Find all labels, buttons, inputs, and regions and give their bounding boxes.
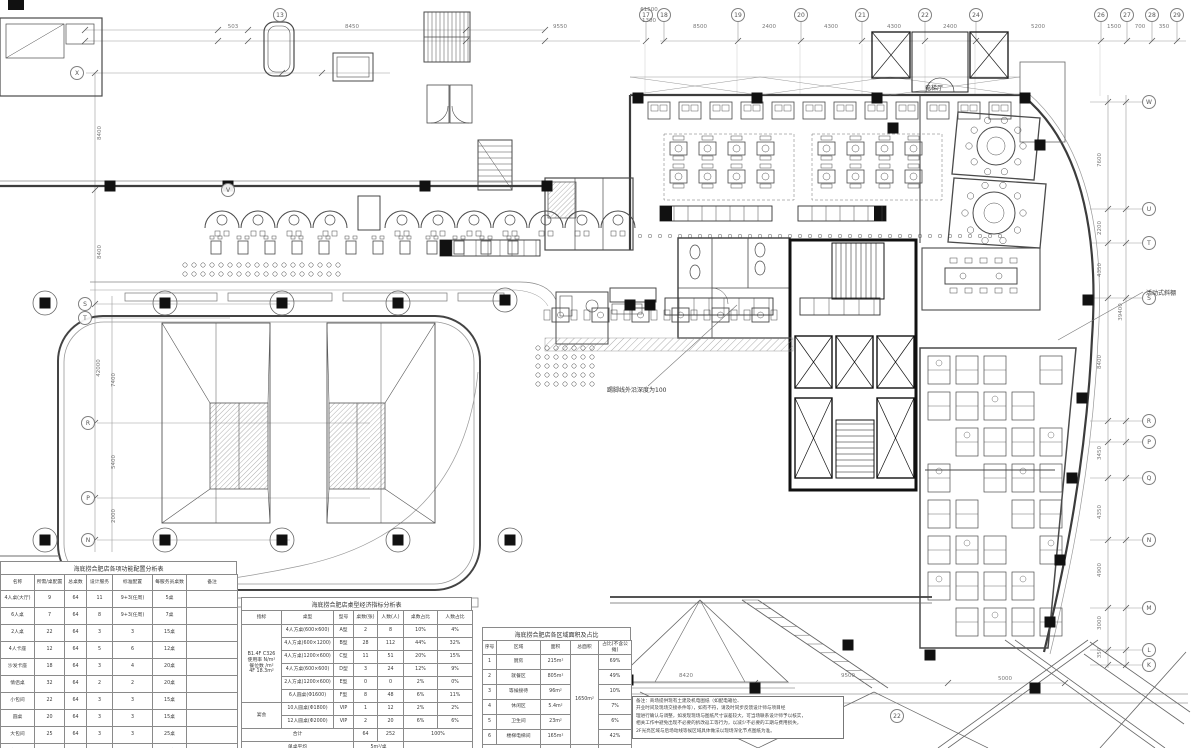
table-cell: 情侣桌 bbox=[1, 676, 35, 693]
table-cell: 64 bbox=[65, 659, 87, 676]
table-cell: 252 bbox=[378, 729, 404, 742]
note-line: 备注：商场提供现有土建及机电图纸（如配电箱位、 bbox=[636, 699, 840, 705]
table-cell: 8 bbox=[354, 690, 378, 703]
table-cell: 4 bbox=[483, 700, 497, 715]
table-cell: 9+3(任周) bbox=[113, 591, 153, 608]
grid-bubble-l: L bbox=[1142, 643, 1156, 657]
table-cell: 165m² bbox=[541, 730, 571, 745]
table-cell: 2% bbox=[438, 703, 473, 716]
table-cell: 64 bbox=[65, 676, 87, 693]
table-cell: 2% bbox=[404, 677, 438, 690]
grid-bubble-22: 22 bbox=[918, 8, 932, 22]
table-cell: 10人圆桌(Φ1800) bbox=[282, 703, 334, 716]
grid-bubble-n: N bbox=[81, 533, 95, 547]
table-cell: 15桌 bbox=[153, 625, 187, 642]
table-cell: 2 bbox=[483, 670, 497, 685]
table-cell: 64 bbox=[65, 625, 87, 642]
table-cell: 8 bbox=[87, 608, 113, 625]
table-cell: 20 bbox=[35, 710, 65, 727]
table-cell: 圆桌 bbox=[1, 710, 35, 727]
table-cell: 2 bbox=[113, 676, 153, 693]
table-cell: 12 bbox=[378, 703, 404, 716]
table-cell: 6 bbox=[113, 642, 153, 659]
table-cell: 4人方桌(600×600) bbox=[282, 625, 334, 638]
grid-bubble-r: R bbox=[1142, 414, 1156, 428]
table-cell: 4人方桌(600×1200) bbox=[282, 638, 334, 651]
table-cell: 10% bbox=[404, 625, 438, 638]
table-row: 情侣桌32642220桌 bbox=[1, 676, 238, 693]
table-cell: 64 bbox=[65, 727, 87, 744]
grid-bubble-26: 26 bbox=[1094, 8, 1108, 22]
table-cell: 69% bbox=[599, 655, 632, 670]
dimension-label: 8450 bbox=[345, 24, 359, 30]
table-cell: 23m² bbox=[541, 715, 571, 730]
table-cell: 3 bbox=[113, 727, 153, 744]
table-cell: 215m² bbox=[541, 655, 571, 670]
table-cell: 25桌 bbox=[153, 727, 187, 744]
table-cell: 合计 bbox=[242, 729, 354, 742]
table-cell: 7 bbox=[35, 608, 65, 625]
dimension-label: 39400 bbox=[1118, 303, 1124, 321]
table-cell: 9 bbox=[35, 591, 65, 608]
table-cell: 49% bbox=[599, 670, 632, 685]
table-cell: 1 bbox=[354, 703, 378, 716]
dimension-label: 8500 bbox=[693, 24, 707, 30]
table-header: 备注 bbox=[187, 575, 238, 591]
table-cell: 楼梯电梯间 bbox=[497, 730, 541, 745]
table-cell: 20 bbox=[378, 716, 404, 729]
table-cell bbox=[187, 710, 238, 727]
dimension-label: 350 bbox=[1159, 24, 1170, 30]
table-cell: 6% bbox=[404, 690, 438, 703]
movable-canopy-label: 活动式斜棚 bbox=[1146, 288, 1176, 297]
table-cell: 2 bbox=[354, 716, 378, 729]
table-cell: 11 bbox=[354, 651, 378, 664]
dimension-label: 8400 bbox=[1097, 355, 1103, 369]
table-cell: 24 bbox=[378, 664, 404, 677]
table-row: 小包间22643315桌 bbox=[1, 693, 238, 710]
service-counters bbox=[358, 196, 886, 315]
dimension-label: 8420 bbox=[679, 673, 693, 679]
table-title: 海底捞合肥店各项功能配置分析表 bbox=[0, 561, 237, 574]
table-row: 4人卡座12645612桌 bbox=[1, 642, 238, 659]
table-header: 所需/桌配置 bbox=[35, 575, 65, 591]
elevator-hall-label: 电梯厅 bbox=[925, 83, 943, 92]
table-cell: 宴会 bbox=[242, 703, 282, 729]
table-header: 桌数(张) bbox=[354, 611, 378, 625]
dimension-label: 700 bbox=[1135, 24, 1146, 30]
table-cell: 等候接待 bbox=[497, 685, 541, 700]
table-cell: 2人桌 bbox=[1, 625, 35, 642]
table-cell: 15桌 bbox=[153, 710, 187, 727]
dimension-label: 4300 bbox=[824, 24, 838, 30]
table-cell: 小包间 bbox=[1, 693, 35, 710]
note-line: 相关工作中避免出现不必要的拆改返工等行为，以减少不必要的工期与费用损失， bbox=[636, 721, 840, 727]
table-header: 桌型 bbox=[282, 611, 334, 625]
table-cell: 100% bbox=[404, 729, 473, 742]
dimension-label: 1300 bbox=[642, 18, 656, 24]
table-cell: 64 bbox=[65, 744, 87, 748]
floor-plan-canvas: 171813192021222426272829XVSTRPNWUTSRPQNM… bbox=[0, 0, 1191, 748]
table-cell: 3 bbox=[113, 625, 153, 642]
dimension-lines bbox=[85, 30, 1186, 683]
table-cell: 5 bbox=[87, 642, 113, 659]
table-cell: 单桌平均 bbox=[242, 742, 354, 748]
table-cell bbox=[187, 608, 238, 625]
grid-bubble-28: 28 bbox=[1145, 8, 1159, 22]
dimension-label: 4300 bbox=[887, 24, 901, 30]
table-cell: 6% bbox=[438, 716, 473, 729]
table-cell bbox=[187, 676, 238, 693]
grid-bubble-n: N bbox=[1142, 533, 1156, 547]
table-cell bbox=[571, 745, 599, 748]
table-cell: 9+3(任周) bbox=[113, 608, 153, 625]
table-cell: 6 bbox=[483, 730, 497, 745]
table-cell: 12人圆桌(Φ2000) bbox=[282, 716, 334, 729]
grid-bubble-18: 18 bbox=[657, 8, 671, 22]
table-cell: D型 bbox=[334, 664, 354, 677]
grid-bubble-27: 27 bbox=[1120, 8, 1134, 22]
table-cell bbox=[187, 727, 238, 744]
grid-bubble-13: 13 bbox=[273, 8, 287, 22]
grid-bubble-v: V bbox=[221, 183, 235, 197]
dimension-label: 2000 bbox=[111, 509, 117, 523]
table-cell: C型 bbox=[334, 651, 354, 664]
table-row: 6楼梯电梯间165m²42% bbox=[483, 730, 632, 745]
entry-vestibule bbox=[90, 178, 633, 306]
private-dining-rooms bbox=[948, 112, 1046, 248]
dimension-label: 5000 bbox=[998, 676, 1012, 682]
table-cell: 卫生间 bbox=[497, 715, 541, 730]
table-cell: 11 bbox=[87, 591, 113, 608]
grid-bubble-p: P bbox=[1142, 435, 1156, 449]
long-table-room bbox=[922, 248, 1040, 310]
table-cell: 1 bbox=[483, 655, 497, 670]
grid-bubble-m: M bbox=[1142, 601, 1156, 615]
table-header: 人数(人) bbox=[378, 611, 404, 625]
table-cell: 20桌 bbox=[153, 659, 187, 676]
dimension-label: 7400 bbox=[111, 373, 117, 387]
table-header: 名称 bbox=[1, 575, 35, 591]
table-area-breakdown: 海底捞合肥店各区域面积及占比序号区域面积总面积占比(不含公摊)1厨房215m²1… bbox=[482, 627, 631, 748]
table-cell: 4人桌(大厅) bbox=[1, 591, 35, 608]
table-header: 总桌数 bbox=[65, 575, 87, 591]
table-cell: 112 bbox=[378, 638, 404, 651]
top-left-structures bbox=[0, 0, 512, 190]
table-cell: 2 bbox=[354, 625, 378, 638]
table-row: 1厨房215m²1650m²69% bbox=[483, 655, 632, 670]
table-cell: B1.4F C326 使用率 N/m² 餐位数 /m² 4F 18.3m² bbox=[242, 625, 282, 703]
table-row: 4人桌(大厅)964119+3(任周)5桌 bbox=[1, 591, 238, 608]
table-cell: 9% bbox=[438, 664, 473, 677]
table-row: 合计64252100% bbox=[242, 729, 473, 742]
table-cell: 15% bbox=[438, 651, 473, 664]
table-cell: 18 bbox=[35, 659, 65, 676]
grid-bubble-x: X bbox=[70, 66, 84, 80]
table-cell: 64 bbox=[354, 729, 378, 742]
table-cell: 48 bbox=[378, 690, 404, 703]
table-cell: 25 bbox=[35, 727, 65, 744]
table-cell: 1 bbox=[113, 744, 153, 748]
table-cell bbox=[404, 742, 473, 748]
table-cell: 8 bbox=[378, 625, 404, 638]
table-row: 2就餐区805m²49% bbox=[483, 670, 632, 685]
table-row: 沙发卡座18643420桌 bbox=[1, 659, 238, 676]
table-cell bbox=[187, 693, 238, 710]
table-row: B1.4F C326 使用率 N/m² 餐位数 /m² 4F 18.3m²4人方… bbox=[242, 625, 473, 638]
table-cell: 6% bbox=[599, 715, 632, 730]
table-cell bbox=[187, 591, 238, 608]
table-cell: 20% bbox=[404, 651, 438, 664]
table-cell: 4人方桌(600×600) bbox=[282, 664, 334, 677]
table-cell bbox=[187, 659, 238, 676]
table-row: 5卫生间23m²6% bbox=[483, 715, 632, 730]
driveway bbox=[58, 293, 504, 607]
table-cell: 32% bbox=[438, 638, 473, 651]
note-line: 开业时间及现场交接条件等），如有不符，请及时同步反馈设计师与项目经 bbox=[636, 706, 840, 712]
table-cell: 64 bbox=[65, 608, 87, 625]
table-cell bbox=[187, 744, 238, 748]
table-cell: 96m² bbox=[541, 685, 571, 700]
table-cell: 22 bbox=[35, 625, 65, 642]
table-cell: 3 bbox=[87, 659, 113, 676]
table-cell: 3 bbox=[87, 710, 113, 727]
mid-hall bbox=[545, 288, 793, 351]
table-cell: 22 bbox=[35, 693, 65, 710]
table-cell bbox=[187, 625, 238, 642]
table-cell: 28 bbox=[354, 638, 378, 651]
kitchen-zone bbox=[920, 348, 1076, 648]
table-cell bbox=[599, 745, 632, 748]
table-cell: 90 bbox=[35, 744, 65, 748]
table-cell: F型 bbox=[334, 690, 354, 703]
table-cell: 2人方桌(1200×600) bbox=[282, 677, 334, 690]
table-header: 指标 bbox=[242, 611, 282, 625]
table-title: 海底捞合肥店各区域面积及占比 bbox=[482, 627, 631, 640]
dimension-label: 503 bbox=[228, 24, 239, 30]
dimension-label: 3450 bbox=[1097, 446, 1103, 460]
table-cell: 4% bbox=[438, 625, 473, 638]
table-cell: 11% bbox=[438, 690, 473, 703]
table-cell: 3 bbox=[354, 664, 378, 677]
dimension-label: 2400 bbox=[943, 24, 957, 30]
dimension-label: 9500 bbox=[841, 673, 855, 679]
table-row: 宴会10人圆桌(Φ1800)VIP1122%2% bbox=[242, 703, 473, 716]
notes-box: 备注：商场提供现有土建及机电图纸（如配电箱位、开业时间及现场交接条件等），如有不… bbox=[632, 696, 844, 739]
table-cell: 宴会厅 bbox=[1, 744, 35, 748]
dimension-label: 42000 bbox=[96, 359, 102, 377]
table-cell: 4人方桌(1200×600) bbox=[282, 651, 334, 664]
dimension-label: 9550 bbox=[553, 24, 567, 30]
table-cell: 5桌 bbox=[153, 591, 187, 608]
table-cell: B型 bbox=[334, 638, 354, 651]
table-cell: 6人桌 bbox=[1, 608, 35, 625]
skirting-depth-label: 踢脚线外沿深度为100 bbox=[607, 385, 666, 394]
table-cell: 大包间 bbox=[1, 727, 35, 744]
table-cell: 42% bbox=[599, 730, 632, 745]
grid-bubble-k: K bbox=[1142, 658, 1156, 672]
table-cell: 44% bbox=[404, 638, 438, 651]
elevator-core bbox=[790, 240, 916, 490]
table-cell: 5.4m² bbox=[541, 700, 571, 715]
table-cell: 2% bbox=[404, 703, 438, 716]
grid-bubble-21: 21 bbox=[855, 8, 869, 22]
table-cell: 1650m² bbox=[571, 655, 599, 745]
grid-bubble-p: P bbox=[81, 491, 95, 505]
table-cell: 5 bbox=[483, 715, 497, 730]
dimension-label: 4350 bbox=[1097, 263, 1103, 277]
table-header: 设计服务 bbox=[87, 575, 113, 591]
note-line: 2F光亮区域与后场动线等候区域具体做法以现场深化节点图纸为准。 bbox=[636, 729, 840, 735]
grid-bubble-r: R bbox=[81, 416, 95, 430]
table-cell: 12桌 bbox=[153, 642, 187, 659]
table-cell: 12% bbox=[404, 664, 438, 677]
table-cell: 20桌 bbox=[153, 676, 187, 693]
table-cell: 6人圆桌(Φ1600) bbox=[282, 690, 334, 703]
dimension-label: 2200 bbox=[1097, 221, 1103, 235]
table-cell bbox=[187, 642, 238, 659]
table-cell: VIP bbox=[334, 703, 354, 716]
dimension-label: 350 bbox=[1097, 648, 1103, 659]
table-cell: 805m² bbox=[541, 670, 571, 685]
table-row: 6人桌76489+3(任周)7桌 bbox=[1, 608, 238, 625]
table-header: 区域 bbox=[497, 641, 541, 655]
table-cell: 64 bbox=[65, 642, 87, 659]
grid-bubble-22: 22 bbox=[890, 709, 904, 723]
table-cell: 3 bbox=[113, 710, 153, 727]
dimension-label: 5400 bbox=[111, 455, 117, 469]
table-cell: 0 bbox=[354, 677, 378, 690]
table-header: 每服务员桌数 bbox=[153, 575, 187, 591]
table-title: 海底捞合肥店桌型经济指标分析表 bbox=[241, 597, 472, 610]
table-cell: A型 bbox=[334, 625, 354, 638]
table-cell: 3 bbox=[483, 685, 497, 700]
table-cell: 3 bbox=[87, 727, 113, 744]
table-row: 大包间25643325桌 bbox=[1, 727, 238, 744]
grid-bubble-t: T bbox=[78, 311, 92, 325]
table-type-metrics: 海底捞合肥店桌型经济指标分析表指标桌型型号桌数(张)人数(人)桌数占比人数占比B… bbox=[241, 597, 472, 748]
table-header: 桌数占比 bbox=[404, 611, 438, 625]
table-cell bbox=[541, 745, 571, 748]
table-header: 面积 bbox=[541, 641, 571, 655]
table-cell: 7% bbox=[599, 700, 632, 715]
table-cell: 1 bbox=[87, 744, 113, 748]
table-cell: 64 bbox=[65, 693, 87, 710]
table-cell: 沙发卡座 bbox=[1, 659, 35, 676]
grid-bubble-u: U bbox=[1142, 202, 1156, 216]
grid-bubble-29: 29 bbox=[1170, 8, 1184, 22]
table-header: 人数占比 bbox=[438, 611, 473, 625]
table-cell: 就餐区 bbox=[497, 670, 541, 685]
table-cell: 6% bbox=[404, 716, 438, 729]
grid-bubble-20: 20 bbox=[794, 8, 808, 22]
table-cell: 0% bbox=[438, 677, 473, 690]
table-row: 单桌平均5m²/桌 bbox=[242, 742, 473, 748]
table-cell: 3 bbox=[87, 625, 113, 642]
dimension-label: 4900 bbox=[1097, 563, 1103, 577]
table-header: 总面积 bbox=[571, 641, 599, 655]
washrooms bbox=[678, 238, 790, 338]
grid-bubble-w: W bbox=[1142, 95, 1156, 109]
elevator-lobby-top bbox=[872, 32, 1065, 142]
table-cell: VIP bbox=[334, 716, 354, 729]
table-cell: 0 bbox=[378, 677, 404, 690]
table-cell: 15桌 bbox=[153, 693, 187, 710]
table-row: 4休闲区5.4m²7% bbox=[483, 700, 632, 715]
grid-bubble-s: S bbox=[78, 297, 92, 311]
dimension-label: 5200 bbox=[1031, 24, 1045, 30]
table-cell: 64 bbox=[65, 710, 87, 727]
dimension-label: 2400 bbox=[762, 24, 776, 30]
table-cell: 合计 bbox=[483, 745, 541, 748]
table-row: 圆桌20643315桌 bbox=[1, 710, 238, 727]
table-cell: 50桌 bbox=[153, 744, 187, 748]
table-cell: 32 bbox=[35, 676, 65, 693]
table-row: 宴会厅90641150桌 bbox=[1, 744, 238, 748]
grid-bubble-q: Q bbox=[1142, 471, 1156, 485]
table-header: 型号 bbox=[334, 611, 354, 625]
table-cell: E型 bbox=[334, 677, 354, 690]
table-function-analysis: 海底捞合肥店各项功能配置分析表名称所需/桌配置总桌数设计服务标准配置每服务员桌数… bbox=[0, 561, 237, 748]
table-cell: 休闲区 bbox=[497, 700, 541, 715]
table-cell: 64 bbox=[65, 591, 87, 608]
table-cell: 4 bbox=[113, 659, 153, 676]
table-cell: 3 bbox=[87, 693, 113, 710]
table-cell: 厨房 bbox=[497, 655, 541, 670]
grid-bubble-24: 24 bbox=[969, 8, 983, 22]
grid-bubble-19: 19 bbox=[731, 8, 745, 22]
table-cell: 4人卡座 bbox=[1, 642, 35, 659]
table-header: 占比(不含公摊) bbox=[599, 641, 632, 655]
dimension-label: 8400 bbox=[97, 245, 103, 259]
dimension-label: 4350 bbox=[1097, 505, 1103, 519]
table-header: 序号 bbox=[483, 641, 497, 655]
dimension-label: 3000 bbox=[1097, 616, 1103, 630]
table-cell: 10% bbox=[599, 685, 632, 700]
grid-bubble-t: T bbox=[1142, 236, 1156, 250]
table-cell: 7桌 bbox=[153, 608, 187, 625]
dimension-label: 1500 bbox=[1107, 24, 1121, 30]
table-cell: 51 bbox=[378, 651, 404, 664]
dimension-label: 8400 bbox=[97, 126, 103, 140]
table-cell: 3 bbox=[113, 693, 153, 710]
table-cell: 5m²/桌 bbox=[354, 742, 404, 748]
dimension-label: 7600 bbox=[1097, 153, 1103, 167]
table-row: 合计 bbox=[483, 745, 632, 748]
table-cell: 12 bbox=[35, 642, 65, 659]
table-cell: 2 bbox=[87, 676, 113, 693]
note-line: 理进行确认与调整，如发现现场与图纸尺寸误差较大，可当场联系设计师予以核实， bbox=[636, 714, 840, 720]
table-row: 2人桌22643315桌 bbox=[1, 625, 238, 642]
table-header: 标准配置 bbox=[113, 575, 153, 591]
dimension-label: 61500 bbox=[640, 7, 658, 13]
table-row: 3等候接待96m²10% bbox=[483, 685, 632, 700]
